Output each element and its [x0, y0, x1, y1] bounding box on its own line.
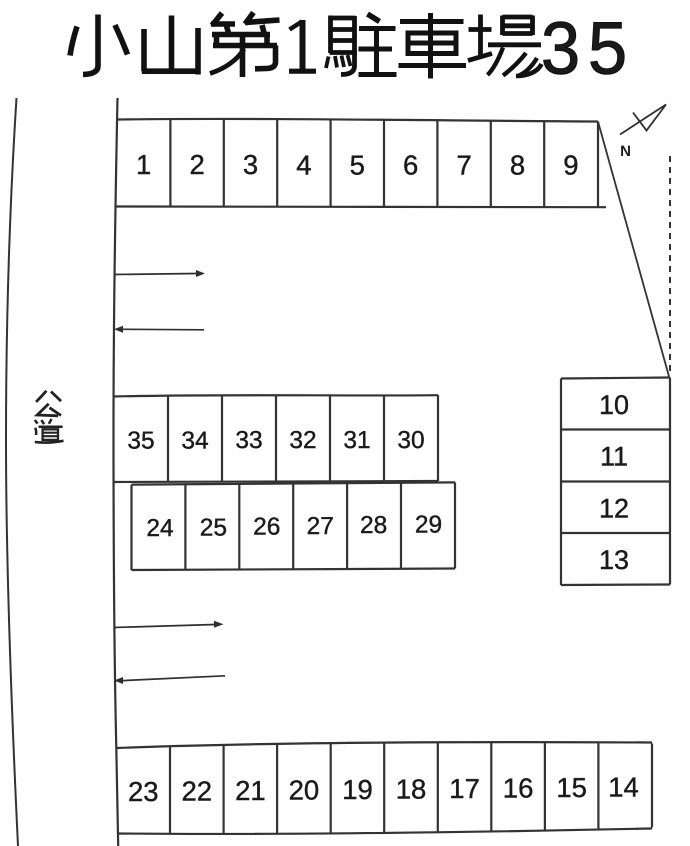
svg-text:34: 34: [181, 427, 208, 454]
svg-text:27: 27: [307, 513, 334, 540]
svg-text:10: 10: [599, 390, 629, 420]
svg-text:19: 19: [342, 774, 373, 805]
svg-text:7: 7: [456, 149, 471, 180]
svg-text:13: 13: [599, 545, 629, 575]
svg-text:23: 23: [128, 776, 159, 807]
svg-text:8: 8: [510, 150, 525, 181]
svg-text:9: 9: [563, 150, 578, 181]
svg-text:28: 28: [360, 512, 387, 539]
svg-text:21: 21: [235, 775, 266, 806]
svg-text:33: 33: [235, 427, 262, 454]
svg-text:29: 29: [415, 511, 442, 538]
svg-text:12: 12: [599, 493, 629, 523]
svg-text:20: 20: [289, 774, 320, 805]
svg-text:25: 25: [200, 514, 227, 541]
svg-text:22: 22: [182, 775, 213, 806]
svg-text:11: 11: [600, 442, 628, 472]
svg-text:17: 17: [449, 773, 480, 804]
svg-text:30: 30: [397, 427, 424, 454]
svg-text:15: 15: [556, 772, 587, 803]
svg-text:1: 1: [136, 149, 151, 180]
svg-text:5: 5: [588, 7, 627, 90]
svg-text:35: 35: [127, 427, 154, 454]
svg-text:31: 31: [343, 427, 370, 454]
svg-text:3: 3: [541, 7, 580, 90]
svg-text:24: 24: [146, 515, 173, 542]
svg-text:N: N: [620, 143, 631, 160]
svg-text:3: 3: [243, 149, 258, 180]
svg-text:32: 32: [289, 427, 316, 454]
svg-text:6: 6: [403, 149, 418, 180]
svg-text:16: 16: [503, 772, 534, 803]
svg-text:2: 2: [189, 149, 204, 180]
svg-text:14: 14: [608, 771, 639, 802]
svg-text:18: 18: [396, 773, 427, 804]
svg-text:4: 4: [296, 149, 311, 180]
svg-text:5: 5: [350, 149, 365, 180]
svg-text:26: 26: [253, 514, 280, 541]
